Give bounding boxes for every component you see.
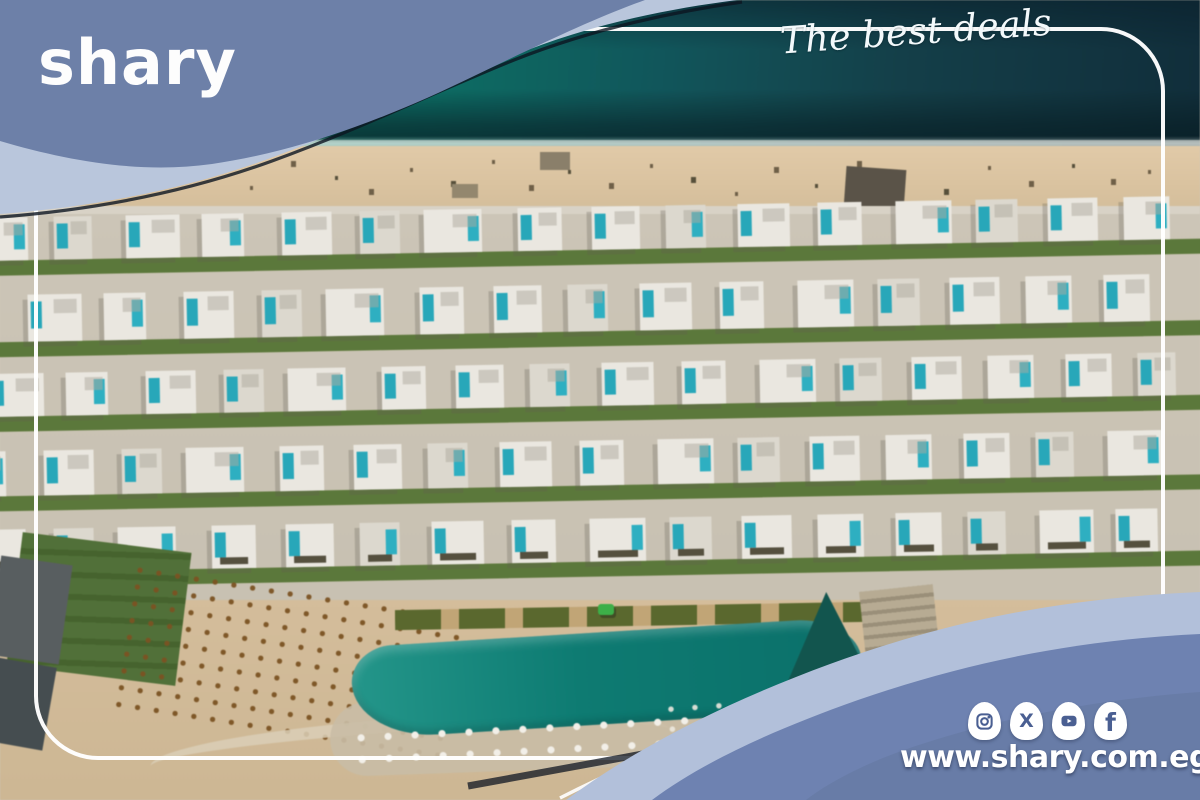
villa-row	[0, 268, 1200, 358]
villa	[211, 525, 256, 569]
villa	[741, 515, 792, 559]
villa-row	[0, 424, 1200, 512]
villa	[1035, 432, 1074, 478]
terrace-steps	[859, 584, 939, 651]
villa	[281, 212, 332, 256]
x-glyph: X	[1019, 712, 1034, 731]
villa	[125, 214, 180, 258]
villa	[529, 363, 570, 407]
villa	[103, 293, 146, 341]
villa	[1025, 276, 1072, 324]
villa	[839, 358, 882, 402]
villa	[185, 447, 244, 493]
villa	[797, 280, 854, 328]
villa	[423, 209, 482, 253]
villa	[885, 434, 932, 480]
villa	[567, 284, 608, 332]
facebook-icon[interactable]: f	[1094, 702, 1127, 740]
villa	[493, 285, 542, 333]
villa	[285, 523, 334, 567]
villa	[1115, 508, 1158, 552]
villa	[419, 287, 464, 335]
villa	[967, 511, 1006, 555]
villa	[877, 278, 920, 326]
villa	[665, 205, 706, 249]
villa	[669, 517, 712, 561]
facebook-glyph: f	[1105, 710, 1116, 735]
villa	[53, 216, 92, 260]
villa	[455, 365, 504, 409]
villa	[27, 294, 82, 342]
villa	[201, 213, 244, 257]
villa	[1107, 430, 1162, 476]
villa	[895, 512, 942, 556]
villa	[287, 367, 346, 411]
villa	[759, 359, 816, 403]
x-icon[interactable]: X	[1010, 702, 1043, 740]
website-url[interactable]: www.shary.com.eg	[900, 740, 1180, 775]
villa	[0, 373, 44, 417]
villa	[601, 362, 654, 406]
villa	[261, 290, 302, 338]
villa	[381, 366, 426, 410]
villa	[353, 444, 402, 490]
villa	[0, 451, 6, 497]
villa	[279, 445, 324, 491]
villa	[1047, 198, 1098, 242]
shary-logo: shary	[38, 26, 237, 99]
villa	[719, 281, 764, 329]
villa	[499, 441, 552, 487]
villa	[737, 437, 780, 483]
villa	[817, 514, 864, 558]
villa	[511, 519, 556, 563]
social-icons-row: X f	[968, 702, 1127, 740]
villa	[591, 206, 640, 250]
villa	[975, 199, 1018, 243]
villa	[325, 288, 384, 336]
green-cart	[598, 604, 614, 615]
villa	[987, 355, 1034, 399]
villa	[65, 372, 108, 416]
resort-aerial-photo	[0, 0, 1200, 800]
promo-banner: shary The best deals X f www.shary.com.e…	[0, 0, 1200, 800]
villa	[183, 291, 234, 339]
villa-row	[0, 346, 1200, 432]
villa	[911, 356, 962, 400]
villa	[1103, 274, 1150, 322]
villa	[1123, 196, 1170, 240]
service-building	[0, 657, 57, 750]
villa	[809, 436, 860, 482]
villa	[359, 210, 400, 254]
instagram-icon[interactable]	[968, 702, 1001, 740]
villa	[1039, 510, 1094, 554]
villa	[121, 448, 162, 494]
villa	[427, 443, 468, 489]
villa	[949, 277, 1000, 325]
villa	[963, 433, 1010, 479]
villa	[817, 202, 862, 246]
villa-row	[0, 190, 1200, 276]
villa	[681, 361, 726, 405]
villa	[223, 369, 264, 413]
villa	[657, 438, 714, 484]
villa	[517, 207, 562, 251]
youtube-icon[interactable]	[1052, 702, 1085, 740]
villa	[1065, 353, 1112, 397]
villa	[895, 200, 952, 244]
villa	[431, 521, 484, 565]
villa	[589, 518, 646, 562]
villa	[579, 440, 624, 486]
villa	[639, 283, 692, 331]
villa	[0, 217, 28, 261]
villa	[359, 522, 400, 566]
villa	[737, 203, 790, 247]
villa	[145, 370, 196, 414]
villa	[43, 450, 94, 496]
villa	[1137, 352, 1176, 396]
